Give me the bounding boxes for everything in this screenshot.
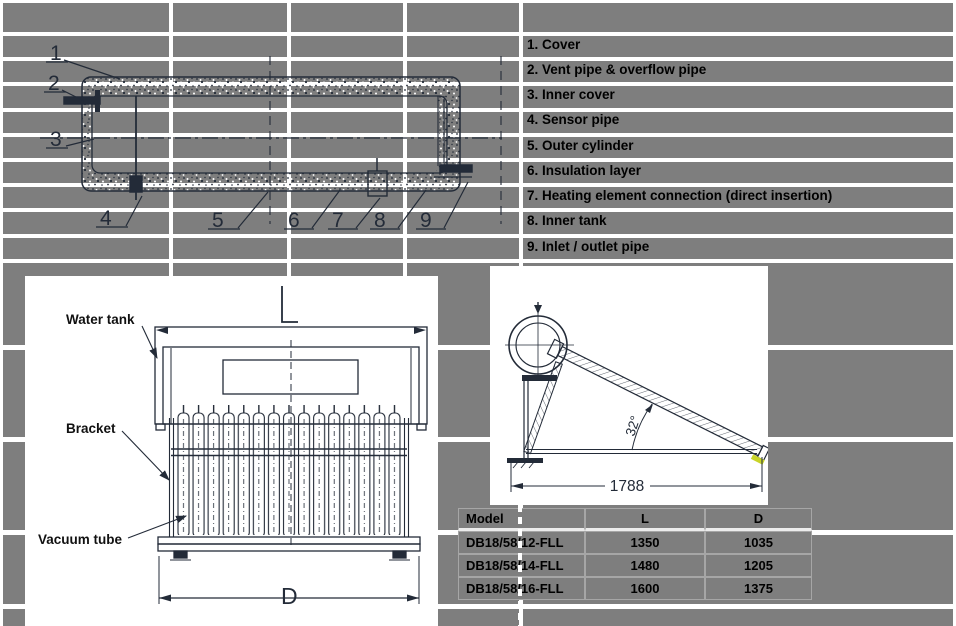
- angle-label: 32°: [623, 414, 644, 438]
- base-foot-right: [393, 551, 406, 558]
- table-cell-l: 1350: [585, 531, 705, 554]
- dim-d-label: D: [281, 583, 298, 609]
- table-cell-d: 1035: [705, 531, 812, 554]
- side-view-drawing: 32° 1788: [490, 266, 768, 505]
- callout-numbers: 1 2 3 4 5 6 7 8 9: [48, 42, 432, 232]
- bracket-leader: [122, 431, 169, 480]
- legend-item: 2. Vent pipe & overflow pipe: [527, 62, 947, 77]
- callout-8: 8: [374, 209, 386, 232]
- callout-7: 7: [332, 209, 344, 232]
- cross-section-drawing: 1 2 3 4 5 6 7 8 9: [0, 28, 520, 260]
- table-header-l: L: [585, 508, 705, 531]
- vent-tick-arrow: [534, 305, 542, 314]
- sensor-pipe-socket: [130, 176, 142, 192]
- front-view-drawing: Water tank Bracket Vacuum tube D: [25, 276, 438, 626]
- callout-3: 3: [50, 128, 62, 151]
- grid-line: [0, 0, 956, 3]
- dim-d-arrow-left: [159, 595, 171, 602]
- table-cell-d: 1205: [705, 554, 812, 577]
- base-rail-bottom: [158, 544, 420, 551]
- legend-item: 5. Outer cylinder: [527, 138, 947, 153]
- spec-sheet-page: 1 2 3 4 5 6 7 8 9 1. Cover 2. Vent pipe …: [0, 0, 956, 626]
- dim-1788-arrow-right: [750, 483, 762, 489]
- vacuum-tube-array: [176, 405, 402, 535]
- grid-line-dashed: [518, 505, 522, 626]
- dim-l-letter: [290, 280, 330, 330]
- inlet-outlet-pipe: [440, 165, 472, 172]
- legend-item: 8. Inner tank: [527, 213, 947, 228]
- side-view-figure: 32° 1788: [490, 266, 768, 505]
- table-header-d: D: [705, 508, 812, 531]
- circle-crosshair: [505, 311, 574, 381]
- dim-arrow-right: [414, 327, 426, 334]
- callout-2: 2: [48, 72, 60, 95]
- dim-d-arrow-right: [407, 595, 419, 602]
- vacuum-tube-label: Vacuum tube: [38, 532, 123, 547]
- callout-4: 4: [100, 207, 112, 230]
- collector-tube: [558, 347, 763, 456]
- vent-pipe-flange: [95, 90, 100, 112]
- bracket-post-left: [170, 418, 174, 537]
- bottom-chord: [526, 450, 757, 454]
- table-cell-l: 1600: [585, 577, 705, 600]
- front-view-figure: Water tank Bracket Vacuum tube D: [25, 276, 438, 626]
- dim-1788-arrow-left: [511, 483, 523, 489]
- tank-foot-right: [417, 424, 426, 430]
- spec-table: Model L D DB18/58/12-FLL 1350 1035 DB18/…: [458, 508, 812, 600]
- post-top-bar: [522, 375, 557, 381]
- post-base-plate: [507, 458, 543, 463]
- callout-6: 6: [288, 209, 300, 232]
- base-rail-top: [158, 537, 420, 544]
- bracket-label: Bracket: [66, 421, 116, 436]
- legend-item: 4. Sensor pipe: [527, 112, 947, 127]
- tank-foot-left: [156, 424, 165, 430]
- table-cell-d: 1375: [705, 577, 812, 600]
- callout-1: 1: [50, 42, 62, 65]
- legend-item: 1. Cover: [527, 37, 947, 52]
- base-length-label: 1788: [610, 478, 644, 495]
- legend-item: 9. Inlet / outlet pipe: [527, 239, 947, 254]
- angle-arc-arrow: [645, 404, 653, 413]
- callout-9: 9: [420, 209, 432, 232]
- legend-item: 6. Insulation layer: [527, 163, 947, 178]
- bracket-post-right: [405, 418, 409, 537]
- legend-item: 3. Inner cover: [527, 87, 947, 102]
- callout-5: 5: [212, 209, 224, 232]
- legend-item: 7. Heating element connection (direct in…: [527, 188, 947, 203]
- insulation-band: [82, 77, 460, 191]
- dim-arrow-left: [156, 327, 168, 334]
- water-tank-label: Water tank: [66, 312, 135, 327]
- table-cell-l: 1480: [585, 554, 705, 577]
- base-foot-left: [174, 551, 187, 558]
